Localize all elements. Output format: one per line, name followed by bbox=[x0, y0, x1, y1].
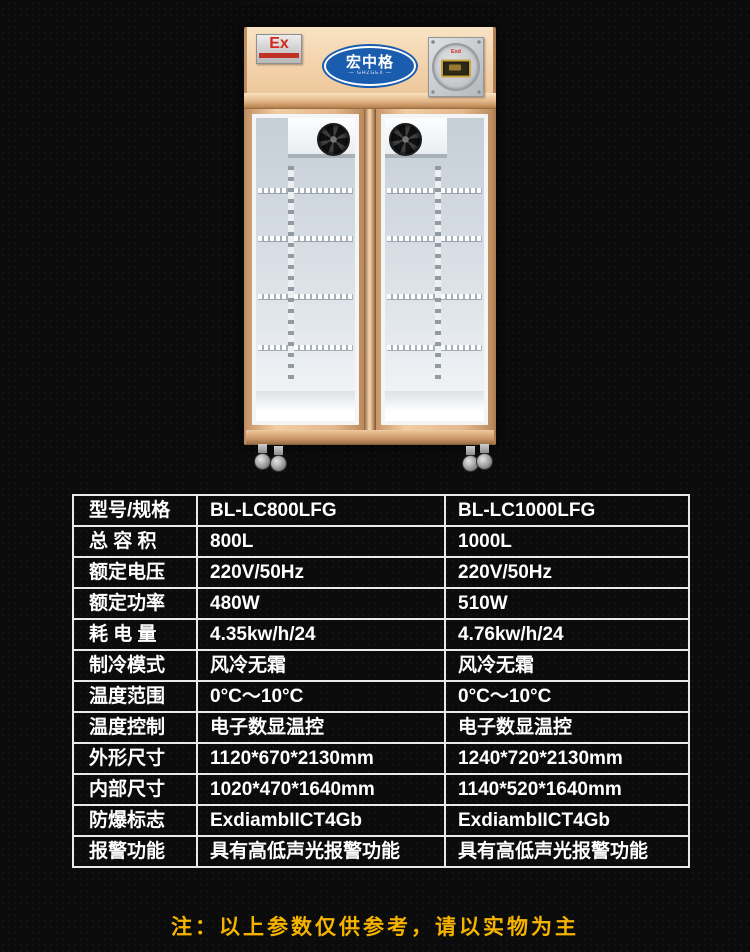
fridge: Ex 宏中格 — GHZGEX — Exd bbox=[244, 27, 496, 445]
kick-plate bbox=[246, 430, 494, 445]
spec-value: 480W bbox=[197, 588, 445, 619]
temperature-display bbox=[441, 59, 471, 77]
spec-value: 风冷无霜 bbox=[197, 650, 445, 681]
spec-value: 220V/50Hz bbox=[197, 557, 445, 588]
spec-label: 制冷模式 bbox=[73, 650, 197, 681]
shelf-track bbox=[435, 166, 441, 384]
spec-label: 额定电压 bbox=[73, 557, 197, 588]
spec-label: 温度范围 bbox=[73, 681, 197, 712]
table-row: 外形尺寸1120*670*2130mm1240*720*2130mm bbox=[73, 743, 689, 774]
caster-wheel bbox=[254, 444, 270, 471]
table-row: 制冷模式风冷无霜风冷无霜 bbox=[73, 650, 689, 681]
fridge-doors bbox=[247, 109, 493, 430]
evaporator-panel bbox=[385, 118, 447, 158]
center-post bbox=[364, 109, 376, 430]
spec-label: 防爆标志 bbox=[73, 805, 197, 836]
spec-value: 电子数显温控 bbox=[197, 712, 445, 743]
ex-badge: Ex bbox=[256, 34, 302, 64]
table-row: 内部尺寸1020*470*1640mm1140*520*1640mm bbox=[73, 774, 689, 805]
bolt-icon bbox=[431, 90, 435, 94]
spec-value: ExdiambIICT4Gb bbox=[197, 805, 445, 836]
brand-name-latin: — GHZGEX — bbox=[348, 71, 391, 77]
spec-label: 温度控制 bbox=[73, 712, 197, 743]
door-handle bbox=[367, 237, 372, 308]
spec-value: BL-LC800LFG bbox=[197, 495, 445, 526]
spec-value: 4.76kw/h/24 bbox=[445, 619, 689, 650]
spec-value: 4.35kw/h/24 bbox=[197, 619, 445, 650]
disclaimer-note: 注：以上参数仅供参考，请以实物为主 bbox=[0, 911, 750, 941]
ex-badge-strip bbox=[259, 53, 299, 58]
bolt-icon bbox=[431, 40, 435, 44]
spec-value: 1000L bbox=[445, 526, 689, 557]
spec-value: ExdiambIICT4Gb bbox=[445, 805, 689, 836]
spec-label: 报警功能 bbox=[73, 836, 197, 867]
shelf-track bbox=[288, 166, 294, 384]
table-row: 额定功率480W510W bbox=[73, 588, 689, 619]
brand-logo: 宏中格 — GHZGEX — bbox=[324, 46, 416, 86]
spec-value: 1140*520*1640mm bbox=[445, 774, 689, 805]
table-row: 防爆标志ExdiambIICT4GbExdiambIICT4Gb bbox=[73, 805, 689, 836]
spec-value: 1120*670*2130mm bbox=[197, 743, 445, 774]
wire-shelf bbox=[258, 236, 353, 241]
spec-label: 额定功率 bbox=[73, 588, 197, 619]
fan-icon bbox=[317, 123, 350, 156]
spec-value: 1020*470*1640mm bbox=[197, 774, 445, 805]
spec-table-body: 型号/规格BL-LC800LFGBL-LC1000LFG总 容 积800L100… bbox=[73, 495, 689, 867]
controller-exd-label: Exd bbox=[436, 49, 476, 54]
cabinet-floor bbox=[385, 391, 484, 421]
spec-label: 内部尺寸 bbox=[73, 774, 197, 805]
spec-value: BL-LC1000LFG bbox=[445, 495, 689, 526]
fridge-door-right bbox=[376, 109, 493, 430]
door-glass-left bbox=[252, 114, 359, 425]
fridge-door-left bbox=[247, 109, 364, 430]
spec-value: 1240*720*2130mm bbox=[445, 743, 689, 774]
fan-icon bbox=[389, 123, 422, 156]
table-row: 型号/规格BL-LC800LFGBL-LC1000LFG bbox=[73, 495, 689, 526]
bolt-icon bbox=[477, 40, 481, 44]
spec-value: 电子数显温控 bbox=[445, 712, 689, 743]
table-row: 温度控制电子数显温控电子数显温控 bbox=[73, 712, 689, 743]
table-row: 额定电压220V/50Hz220V/50Hz bbox=[73, 557, 689, 588]
spec-value: 具有高低声光报警功能 bbox=[197, 836, 445, 867]
temperature-controller: Exd bbox=[428, 37, 484, 97]
cabinet-floor bbox=[256, 391, 355, 421]
door-glass-right bbox=[381, 114, 488, 425]
spec-label: 型号/规格 bbox=[73, 495, 197, 526]
table-row: 耗 电 量4.35kw/h/244.76kw/h/24 bbox=[73, 619, 689, 650]
wire-shelf bbox=[258, 294, 353, 299]
product-image: Ex 宏中格 — GHZGEX — Exd bbox=[0, 0, 750, 492]
spec-table: 型号/规格BL-LC800LFGBL-LC1000LFG总 容 积800L100… bbox=[72, 494, 690, 868]
wire-shelf bbox=[258, 345, 353, 350]
evaporator-panel bbox=[288, 118, 355, 158]
spec-value: 风冷无霜 bbox=[445, 650, 689, 681]
spec-label: 总 容 积 bbox=[73, 526, 197, 557]
spec-label: 耗 电 量 bbox=[73, 619, 197, 650]
caster-wheel bbox=[270, 446, 286, 473]
caster-wheel bbox=[476, 444, 492, 471]
spec-value: 510W bbox=[445, 588, 689, 619]
table-row: 总 容 积800L1000L bbox=[73, 526, 689, 557]
product-spec-page: Ex 宏中格 — GHZGEX — Exd bbox=[0, 0, 750, 952]
spec-value: 800L bbox=[197, 526, 445, 557]
controller-flange: Exd bbox=[432, 43, 480, 91]
table-row: 温度范围0°C～10°C0°C～10°C bbox=[73, 681, 689, 712]
spec-value: 具有高低声光报警功能 bbox=[445, 836, 689, 867]
spec-value: 0°C～10°C bbox=[197, 681, 445, 712]
spec-label: 外形尺寸 bbox=[73, 743, 197, 774]
wire-shelf bbox=[258, 188, 353, 193]
spec-value: 0°C～10°C bbox=[445, 681, 689, 712]
bolt-icon bbox=[477, 90, 481, 94]
ex-label: Ex bbox=[257, 35, 301, 53]
brand-name: 宏中格 bbox=[346, 55, 394, 70]
fridge-top-panel: Ex 宏中格 — GHZGEX — Exd bbox=[247, 27, 493, 93]
table-row: 报警功能具有高低声光报警功能具有高低声光报警功能 bbox=[73, 836, 689, 867]
spec-value: 220V/50Hz bbox=[445, 557, 689, 588]
